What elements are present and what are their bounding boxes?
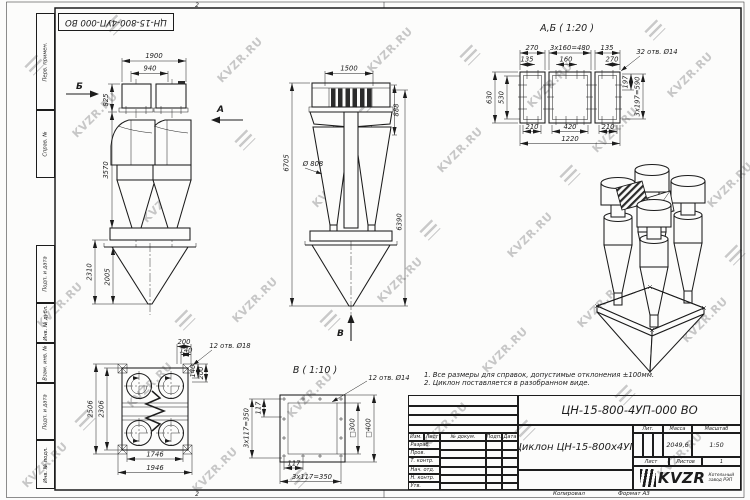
front-view: 1500 888 Ø 808 6705 6390 В: [283, 65, 409, 342]
tb-header-mass: Масса: [663, 425, 692, 433]
view-arrow-v-icon: [348, 314, 355, 323]
dim-label: 888: [393, 103, 401, 117]
dim-label: 6390: [396, 213, 404, 230]
tb-scale-value: 1:50: [692, 433, 741, 457]
dim-label: 6705: [283, 154, 291, 171]
dim-label: 1500: [340, 65, 357, 73]
margin-label: Перв. примен.: [43, 42, 49, 81]
tb-header-scale: Масштаб: [692, 425, 741, 433]
tb-logo-cell: KVZR Котельный завод РЭП: [633, 466, 741, 490]
dim-label: 117: [255, 401, 263, 415]
logo-caption-line2: завод РЭП: [709, 478, 735, 483]
tb-header-doc: № докум.: [440, 433, 486, 441]
dim-label: 2506: [87, 400, 95, 418]
note-line-1: 1. Все размеры для справок, допустимые о…: [424, 371, 654, 379]
margin-box-podp-data-1: Подп. и дата: [36, 245, 55, 303]
drawing-sheet: KVZR.RU KVZR.RU KVZR.RU KVZR.RU KVZR.RU …: [0, 0, 750, 500]
dim-label: 630: [486, 91, 494, 104]
dim-label: 3570: [102, 161, 110, 178]
isometric-view: [595, 165, 706, 373]
margin-label: Справ. №: [43, 131, 49, 156]
margin-label: Подп. и дата: [43, 394, 49, 429]
dim-label: 530: [498, 91, 506, 104]
zone-number-bottom: 2: [195, 491, 199, 498]
dim-label: 1946: [146, 464, 164, 472]
tb-header-list: Лист: [424, 433, 440, 441]
margin-label: Инв. № дубл.: [43, 305, 49, 341]
margin-box-inv-podl: Инв. № подл.: [36, 440, 55, 489]
tb-sheets-value: 1: [702, 457, 741, 466]
tb-row-razrab: Разраб.: [408, 441, 440, 449]
side-view: 1900 940 825 3570 2310 2005 Б А: [66, 52, 243, 315]
dim-label: 197: [622, 75, 630, 89]
note-line-2: 2. Циклон поставляется в разобранном вид…: [424, 379, 654, 387]
dim-label: 1746: [146, 451, 164, 459]
dim-label: 200: [178, 338, 191, 346]
top-stamp-text: ЦН-15-800-4УП-000 ВО: [65, 17, 167, 27]
dim-label: 1220: [561, 135, 578, 143]
tb-row-utv: Утв.: [408, 482, 440, 490]
margin-label: Взам. инв. №: [43, 345, 49, 380]
tb-header-podp: Подп.: [486, 433, 502, 441]
dim-label: 12 отв. Ø18: [209, 342, 251, 350]
dim-label: 135: [521, 56, 534, 64]
view-arrow-b-icon: [90, 91, 99, 98]
tb-mass-value: 2049,6: [663, 433, 692, 457]
dim-label: 200: [197, 367, 205, 380]
format-label: Формат А3: [618, 491, 650, 497]
dim-label: 420: [564, 123, 577, 131]
dim-label: 210: [602, 123, 615, 131]
dim-label: 825: [102, 94, 110, 107]
detail-ab-view: А,Б ( 1:20 ) 270 3х160=480 135 135 160 2…: [486, 23, 678, 146]
tb-header-izm: Изм.: [408, 433, 424, 441]
dim-label: 160: [560, 56, 573, 64]
tb-doc-number: ЦН-15-800-4УП-000 ВО: [518, 395, 741, 425]
dim-label: Ø 808: [302, 160, 324, 168]
margin-box-inv-dubl: Инв. № дубл.: [36, 303, 55, 343]
dim-label: 140: [180, 347, 193, 355]
margin-box-sprav-no: Справ. №: [36, 110, 55, 178]
dim-label: 2310: [86, 263, 94, 280]
margin-box-podp-data-2: Подп. и дата: [36, 383, 55, 440]
dim-label: 2306: [98, 400, 106, 418]
tb-row-tkontr: Т. контр.: [408, 457, 440, 465]
view-arrow-a-label: А: [216, 105, 224, 115]
tb-sheet-label: Лист: [633, 457, 669, 466]
dim-label: 1900: [145, 52, 162, 60]
dim-label: 3х117=350: [243, 408, 251, 448]
view-arrow-a-icon: [211, 117, 220, 124]
dim-label: 210: [526, 123, 539, 131]
title-block: Изм. Лист № докум. Подп. Дата Разраб. Пр…: [408, 395, 741, 490]
tb-sheets-label: Листов: [669, 457, 702, 466]
zone-number-top: 2: [195, 2, 199, 9]
tb-product-name: Циклон ЦН-15-800х4УП: [518, 425, 633, 470]
tb-header-lit: Лит.: [633, 425, 663, 433]
margin-box-perv-primen: Перв. примен.: [36, 13, 55, 110]
view-arrow-v-label: В: [337, 329, 344, 339]
dim-label: 940: [144, 65, 157, 73]
detail-v-view: В ( 1:10 ) 12 отв. Ø14 3х117=350 117 □30…: [243, 365, 410, 484]
dim-label: 12 отв. Ø14: [368, 374, 409, 382]
dim-label: 270: [526, 44, 539, 52]
margin-label: Инв. № подл.: [43, 447, 49, 483]
dim-label: 117: [288, 460, 302, 468]
kvzr-logo-icon: [640, 469, 656, 487]
view-arrow-b-label: Б: [76, 82, 83, 92]
margin-box-vzam-inv: Взам. инв. №: [36, 343, 55, 383]
detail-ab-title: А,Б ( 1:20 ): [539, 23, 594, 34]
dim-label: 3х197=590: [634, 77, 642, 117]
dim-label: 3х117=350: [292, 473, 332, 481]
notes-block: 1. Все размеры для справок, допустимые о…: [424, 371, 654, 387]
dim-label: □300: [349, 418, 357, 437]
dim-label: 3х160=480: [550, 44, 590, 52]
tb-row-nkontr: Н. контр.: [408, 474, 440, 482]
detail-v-title: В ( 1:10 ): [293, 365, 337, 376]
margin-label: Подп. и дата: [43, 256, 49, 291]
dim-label: 135: [601, 44, 614, 52]
tb-header-data: Дата: [502, 433, 518, 441]
kvzr-logo-text: KVZR: [658, 469, 706, 487]
dim-label: 32 отв. Ø14: [636, 48, 677, 56]
dim-label: □400: [365, 418, 373, 437]
top-inverted-stamp: ЦН-15-800-4УП-000 ВО: [58, 13, 174, 31]
tb-row-nachotd: Нач. отд.: [408, 466, 440, 474]
tb-row-prov: Пров.: [408, 449, 440, 457]
plan-view: 200 140 12 отв. Ø18 140 200 2506 2306 17…: [87, 338, 252, 475]
dim-label: 140: [189, 365, 197, 378]
dim-label: 270: [606, 56, 619, 64]
dim-label: 2005: [104, 268, 112, 285]
copied-label: Копировал: [553, 491, 585, 497]
